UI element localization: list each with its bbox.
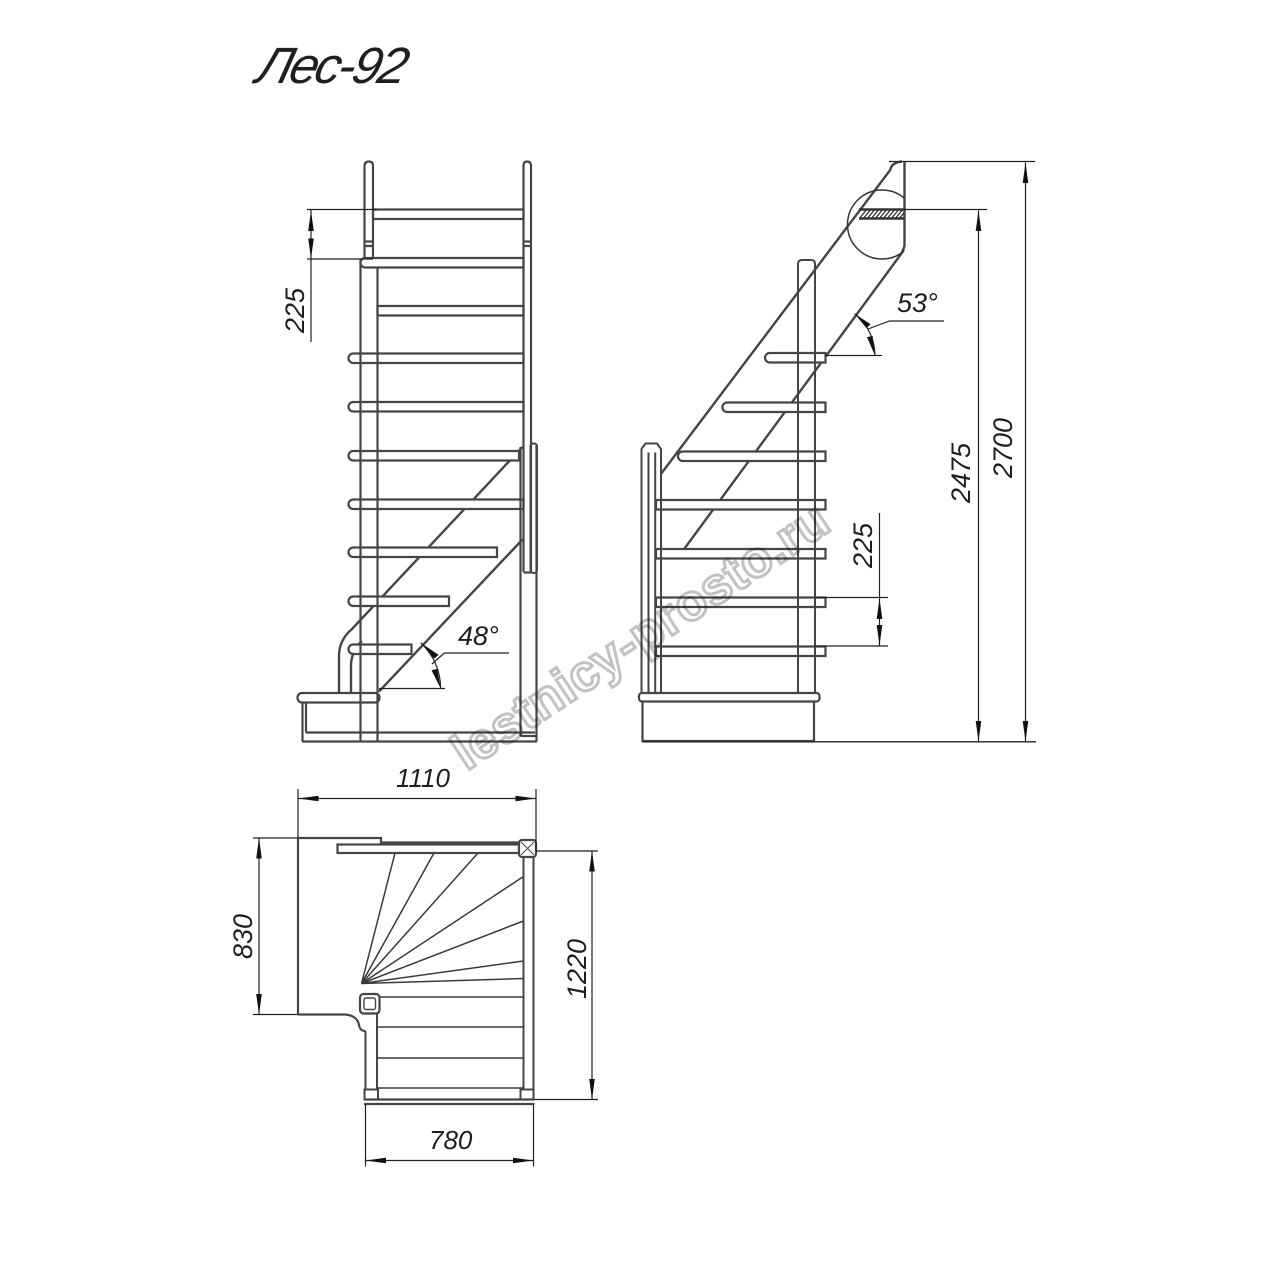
svg-text:Лес-92: Лес-92 [249, 37, 416, 94]
svg-text:225: 225 [848, 522, 878, 569]
svg-text:225: 225 [280, 287, 310, 334]
svg-text:830: 830 [228, 914, 258, 959]
svg-text:2700: 2700 [988, 418, 1018, 479]
svg-text:1110: 1110 [396, 763, 451, 793]
svg-text:1220: 1220 [562, 939, 592, 999]
svg-text:53°: 53° [897, 288, 938, 318]
svg-text:2475: 2475 [946, 442, 976, 504]
svg-text:780: 780 [429, 1125, 473, 1155]
svg-text:lestnicy-prosto.ru: lestnicy-prosto.ru [441, 490, 839, 780]
svg-text:48°: 48° [458, 621, 499, 651]
